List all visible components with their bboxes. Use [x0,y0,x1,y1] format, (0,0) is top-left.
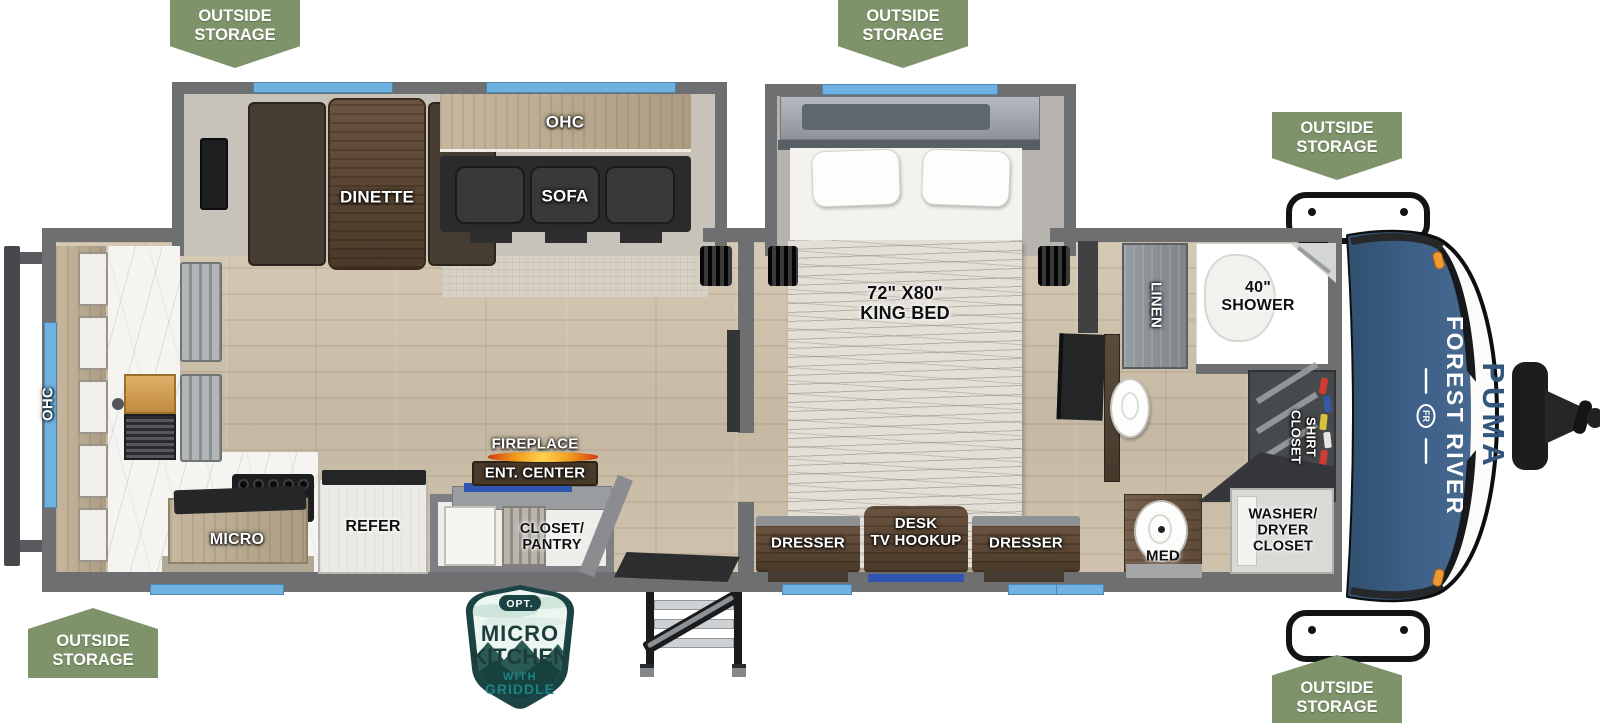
banner-text: OUTSIDE STORAGE [862,7,943,46]
dinette-bench-left [248,102,326,266]
cabinet-door [78,316,108,370]
badge-opt: OPT. [506,598,533,610]
label-ohc-slide: OHC [546,112,584,131]
kitchen-upper-cabinet [180,374,222,462]
label-dresser-right: DRESSER [989,536,1063,553]
banner-text: OUTSIDE STORAGE [1296,119,1377,158]
bath-window [1056,584,1104,595]
crest-initials: FR [1421,410,1431,422]
bedroom-tv [1057,333,1106,421]
bedroom-window-left [782,584,852,595]
label-king-bed: 72" X80" KING BED [860,283,950,323]
tv-strip-icon [868,574,964,582]
entry-steps [638,592,752,680]
label-ohc-rear: OHC [41,387,58,421]
label-washer-dryer: WASHER/ DRYER CLOSET [1248,507,1317,556]
cabinet-door [78,508,108,562]
privacy-curtain [768,246,798,286]
label-ent-center: ENT. CENTER [485,466,586,483]
closet-door [444,506,496,566]
sofa-cushion [605,166,675,224]
badge-title-2: KITCHEN [471,644,569,669]
bath-wall-tv [1078,241,1098,333]
label-fireplace: FIREPLACE [492,437,579,454]
refrigerator-top [322,470,426,485]
banner-text: OUTSIDE STORAGE [1296,679,1377,718]
sink-drain-icon [1158,526,1165,533]
outside-storage-banner-front-bottom: OUTSIDE STORAGE [1272,655,1402,723]
hitch-jack [1512,362,1548,470]
outside-storage-banner-front-top: OUTSIDE STORAGE [1272,112,1402,180]
floorplan-canvas: OUTSIDE STORAGE OUTSIDE STORAGE OUTSIDE … [0,0,1600,723]
crest-dash [1425,438,1427,464]
label-dresser-left: DRESSER [771,536,845,553]
badge-sub-2: GRIDDLE [485,681,555,697]
rear-bumper-bracket [20,252,44,264]
label-med: MED [1146,549,1180,566]
outside-storage-banner-top-left: OUTSIDE STORAGE [170,0,300,68]
clothes-icon [1319,378,1329,395]
label-desk-tv: DESK TV HOOKUP [871,516,962,550]
label-closet-pantry: CLOSET/ PANTRY [520,521,584,553]
griddle [124,414,176,460]
step-foot [640,664,654,677]
top-wall-mid-segment [703,228,765,242]
bedroom-wall-upper [738,241,754,433]
clothes-icon [1323,432,1332,449]
banner-text: OUTSIDE STORAGE [194,7,275,46]
crest-dash [1425,368,1427,394]
dresser-base [984,570,1064,582]
entry-landing [614,552,740,582]
label-sofa: SOFA [541,186,588,205]
sofa-slide-window [486,82,676,93]
label-linen: LINEN [1147,282,1164,328]
clothes-icon [1323,396,1332,413]
cutting-board [124,374,176,414]
front-cap: FR FOREST RIVER PUMA [1340,224,1600,614]
outside-storage-banner-top-center: OUTSIDE STORAGE [838,0,968,68]
microwave [174,486,307,515]
dinette-slide-window [253,82,393,93]
label-refer: REFER [345,518,400,536]
hitch-ball-mount [1587,408,1600,428]
rear-bumper-bracket [20,540,44,552]
privacy-curtain [1038,246,1070,286]
pillow [921,148,1011,207]
faucet-icon [112,398,124,410]
bedroom-wall-lower [738,502,754,572]
top-wall-front-segment [1050,228,1342,242]
pillow [811,148,901,207]
banner-text: OUTSIDE STORAGE [52,632,133,671]
badge-title-1: MICRO [481,621,559,646]
toilet-bowl [1121,392,1139,420]
tongue-frame-rail-bottom [1286,610,1430,662]
rear-bumper [4,246,20,566]
cabinet-door [78,444,108,498]
sofa-base [620,230,662,243]
tv-icon [200,138,228,210]
bed-headboard-panel [802,104,990,130]
vanity-base [1126,564,1202,578]
sofa-base [470,230,512,243]
micro-kitchen-badge: OPT. MICRO KITCHEN WITH GRIDDLE [452,582,588,714]
top-wall-rear-segment [42,228,172,242]
label-dinette: DINETTE [340,187,414,206]
privacy-curtain [700,246,732,286]
label-shirt-closet: SHIRT CLOSET [1288,410,1317,464]
step-foot [732,664,746,677]
label-micro: MICRO [210,531,264,549]
toilet [1110,378,1150,438]
bedroom-pocket-door [727,330,740,432]
sofa-base [545,230,587,243]
brand-maker: FOREST RIVER [1442,316,1468,516]
kitchen-window [150,584,284,595]
outside-storage-banner-bottom-left: OUTSIDE STORAGE [28,608,158,678]
brand-model: PUMA [1476,362,1511,469]
dresser-base [768,570,848,582]
clothes-icon [1319,450,1328,467]
sofa-cushion [455,166,525,224]
clothes-icon [1319,414,1328,431]
fireplace-flame-icon [488,452,598,462]
kitchen-upper-cabinet [180,262,222,362]
cabinet-door [78,380,108,434]
label-shower: 40" SHOWER [1221,279,1294,315]
bed-slide-window [822,84,998,95]
cabinet-door [78,252,108,306]
dinette-table [328,98,426,270]
step-rail [646,592,654,666]
